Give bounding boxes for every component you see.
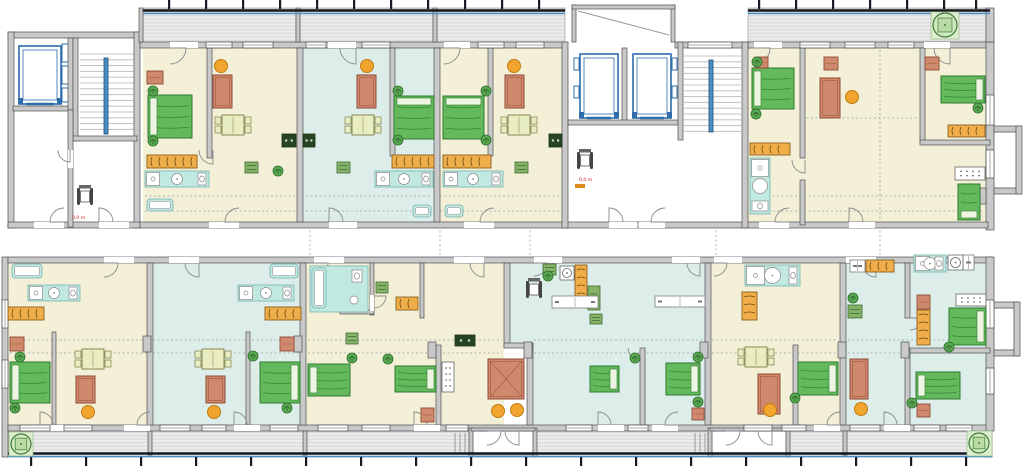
desk-dot [960, 171, 962, 173]
railing-post [943, 0, 945, 9]
railing-post [195, 457, 197, 466]
wall [13, 106, 73, 111]
sofa [206, 376, 225, 403]
cabinet [346, 333, 358, 344]
pillow [150, 98, 157, 135]
pillow [446, 98, 481, 105]
railing-post [910, 457, 912, 466]
column [838, 342, 846, 358]
wall [436, 345, 441, 425]
railing-post [250, 457, 252, 466]
chair [345, 117, 351, 124]
kitchen-counter [265, 307, 301, 320]
wall [52, 332, 56, 425]
handle [853, 265, 857, 267]
door-gap [329, 222, 357, 228]
wall [986, 42, 994, 230]
door-gap [884, 425, 910, 431]
desk-dot [967, 301, 969, 303]
door-gap [209, 222, 239, 228]
sink-drain [772, 275, 774, 277]
desk-dot [445, 385, 447, 387]
pillow [291, 365, 298, 400]
door-gap [99, 222, 129, 228]
shower [30, 287, 43, 300]
cabinet [590, 314, 602, 324]
chair [215, 126, 221, 133]
cabinet [848, 305, 862, 318]
chair [501, 126, 507, 133]
pouf [492, 405, 505, 418]
chair [531, 117, 537, 124]
door-gap [464, 222, 494, 228]
wall [742, 42, 748, 228]
sink-drain [53, 292, 55, 294]
sink-drain [265, 292, 267, 294]
wall [73, 136, 137, 141]
desk-dot [973, 297, 975, 299]
chair [375, 117, 381, 124]
chair [738, 349, 744, 356]
sink-drain [176, 178, 178, 180]
wall [420, 263, 424, 318]
wheelchair-back [579, 149, 591, 153]
wall [843, 431, 847, 455]
bathtub-inner [448, 208, 461, 215]
railing-post [832, 0, 834, 9]
unit-bottom-4-nook [507, 263, 530, 345]
elevator-equipment [574, 58, 579, 70]
elevator-sill [18, 98, 23, 104]
wheelchair-icon [590, 152, 593, 169]
wheelchair-seat [81, 191, 90, 202]
shower [445, 173, 458, 186]
railing-post [501, 0, 503, 9]
pouf [208, 406, 221, 419]
wall [905, 348, 910, 425]
burner [285, 139, 287, 141]
desk-dot [978, 171, 980, 173]
wall [572, 5, 675, 9]
elevator-equipment [574, 86, 579, 98]
wc [283, 287, 291, 299]
pillow [427, 369, 434, 389]
wall [303, 431, 307, 455]
door-gap [370, 295, 374, 311]
door-gap [672, 257, 700, 263]
door-gap [414, 425, 440, 431]
column [428, 342, 436, 358]
chair [75, 351, 81, 358]
floor-plan: 0,0 m0,0 m [0, 0, 1024, 472]
railing-post [316, 0, 318, 9]
elevator-car [633, 54, 671, 118]
railing-post [975, 0, 977, 9]
kitchen-block [303, 134, 315, 147]
door-gap [849, 222, 875, 228]
kitchen-counter [147, 155, 197, 168]
desk-dot [973, 301, 975, 303]
terrace-table-center [944, 24, 946, 26]
elevator-sill [579, 112, 584, 118]
pillow [310, 367, 317, 393]
sink [753, 179, 768, 194]
desk-dot [979, 297, 981, 299]
pillow [961, 211, 977, 218]
kitchen-block [455, 335, 475, 346]
desk-dot [445, 367, 447, 369]
terrace-table-center [978, 442, 980, 444]
burner [305, 139, 307, 141]
door-gap [924, 42, 950, 48]
wc [935, 257, 943, 270]
wall [434, 48, 440, 222]
wall [800, 48, 805, 158]
pouf [215, 60, 228, 73]
desk-dot [979, 301, 981, 303]
handle [698, 301, 702, 303]
elevator-car [19, 46, 61, 104]
pillow [691, 366, 698, 392]
pillow [976, 79, 983, 100]
door-gap [814, 425, 840, 431]
railing-post [140, 457, 142, 466]
bathtub-inner [150, 202, 171, 209]
entrance-lobby [994, 308, 1014, 350]
chair [225, 360, 231, 367]
chair [245, 117, 251, 124]
bathtub-inner [273, 267, 296, 276]
desk-dot [445, 373, 447, 375]
door-gap [34, 222, 64, 228]
door-gap [639, 222, 665, 228]
wall [568, 120, 678, 125]
kitchen-counter [8, 307, 44, 320]
bathtub-inner [315, 271, 324, 306]
cabinet [515, 162, 528, 173]
burner [557, 139, 559, 141]
wall [139, 8, 143, 42]
wall [297, 48, 303, 222]
chair [105, 351, 111, 358]
kitchen-block [282, 134, 296, 147]
terrace-table-center [20, 443, 22, 445]
pouf [764, 404, 777, 417]
railing-post [279, 0, 281, 9]
desk-dot [449, 379, 451, 381]
railing-post [30, 457, 32, 466]
wall [8, 32, 140, 38]
chair [345, 126, 351, 133]
sofa [357, 75, 376, 108]
wheelchair-back [528, 278, 540, 282]
railing-post [800, 457, 802, 466]
wall [920, 140, 990, 145]
chair [501, 117, 507, 124]
elevator-sill [614, 112, 619, 118]
door-gap [169, 257, 199, 263]
wall [793, 345, 798, 425]
wall [8, 257, 992, 263]
wheelchair-seat [530, 284, 539, 295]
entrance-lobby [994, 132, 1016, 188]
railing-post [168, 0, 170, 9]
desk-dot [972, 175, 974, 177]
door-gap [598, 425, 624, 431]
railing-post [869, 0, 871, 9]
railing-post [242, 0, 244, 9]
desk-dot [449, 373, 451, 375]
wall [8, 32, 14, 228]
entrance-lobby [473, 431, 533, 455]
pillow [829, 365, 836, 392]
door-gap [124, 425, 150, 431]
bathtub-inner [15, 267, 40, 276]
elevator-car [580, 54, 618, 118]
wall [73, 38, 78, 141]
wall [671, 5, 675, 42]
kitchen-counter [917, 310, 930, 345]
wall [920, 48, 925, 142]
railing-post [470, 457, 472, 466]
handle [591, 301, 595, 303]
pillow [918, 375, 925, 396]
wc [752, 201, 768, 211]
wheelchair-icon [90, 188, 93, 205]
railing-post [85, 457, 87, 466]
wall [1016, 126, 1022, 194]
chair [105, 360, 111, 367]
chair [375, 126, 381, 133]
railing-post [305, 457, 307, 466]
wheelchair-icon [577, 152, 580, 169]
desk-dot [960, 175, 962, 177]
shower [752, 160, 769, 177]
wc [422, 173, 430, 185]
wall [905, 263, 910, 318]
kitchen-counter [948, 125, 985, 137]
door-gap [328, 42, 356, 48]
elevator-sill [57, 98, 62, 104]
door-gap [444, 42, 470, 48]
pouf [846, 91, 859, 104]
kitchen-counter [443, 155, 491, 168]
wall [148, 431, 152, 455]
desk-dot [967, 297, 969, 299]
chair [225, 351, 231, 358]
cabinet [376, 282, 388, 293]
railing-post [758, 0, 760, 9]
railing-post [538, 0, 540, 9]
wall [471, 428, 535, 431]
measure-annotation: 0,0 m [72, 215, 86, 221]
shower [747, 267, 765, 285]
door-gap [759, 222, 789, 228]
railing-post [965, 457, 967, 466]
chair [245, 126, 251, 133]
railing-post [906, 0, 908, 9]
handle [858, 265, 862, 267]
entrance-lobby [712, 431, 786, 455]
sofa [820, 78, 840, 118]
wc [789, 267, 797, 284]
desk [442, 362, 454, 392]
handle [555, 301, 559, 303]
railing-post [464, 0, 466, 9]
pillow [754, 71, 761, 106]
wall [504, 263, 510, 347]
floor-plan-canvas: 0,0 m0,0 m [0, 0, 1024, 472]
railing-post [360, 457, 362, 466]
measure-tick [575, 184, 585, 188]
elevator-equipment [672, 86, 677, 98]
door-gap [454, 257, 484, 263]
handle [967, 262, 971, 264]
railing-post [427, 0, 429, 9]
door-gap [534, 257, 562, 263]
pillow [12, 365, 19, 400]
shower [147, 173, 160, 186]
wc [492, 173, 500, 185]
wheelchair-seat [581, 155, 590, 166]
wall [68, 38, 73, 110]
door-gap [234, 425, 260, 431]
wall [68, 110, 73, 227]
door-gap [609, 222, 637, 228]
cabinet [337, 162, 350, 173]
railing-post [690, 457, 692, 466]
burner [552, 139, 554, 141]
stair-rail [709, 60, 713, 132]
railing-post [415, 457, 417, 466]
chair [768, 349, 774, 356]
desk-dot [449, 367, 451, 369]
wall [134, 32, 140, 228]
wheelchair-icon [539, 281, 542, 298]
wheelchair-icon [77, 188, 80, 205]
pillow [610, 369, 617, 389]
desk [956, 294, 986, 306]
pouf [855, 403, 868, 416]
railing-post [390, 0, 392, 9]
burner [310, 139, 312, 141]
handle [658, 301, 662, 303]
door-gap [170, 42, 198, 48]
column [901, 342, 909, 358]
pouf [508, 60, 521, 73]
burner [460, 339, 462, 341]
washer-dot [566, 272, 568, 274]
sink-drain [472, 178, 474, 180]
wc [198, 173, 206, 185]
column [524, 342, 532, 358]
column [294, 336, 302, 352]
bathtub-inner [416, 208, 429, 215]
chair [738, 358, 744, 365]
door-gap [652, 425, 678, 431]
shower [377, 173, 390, 186]
wall [678, 42, 683, 140]
stair-rail [104, 58, 108, 134]
wall [622, 48, 627, 124]
pouf [511, 404, 524, 417]
column [143, 336, 151, 352]
wall [246, 332, 250, 425]
railing-post [795, 0, 797, 9]
wall [572, 5, 576, 42]
chair [75, 360, 81, 367]
wall [562, 42, 568, 228]
pillow [397, 98, 431, 105]
desk-dot [961, 301, 963, 303]
door-gap [314, 257, 344, 263]
chair [195, 351, 201, 358]
railing-post [745, 457, 747, 466]
desk-dot [978, 175, 980, 177]
sink-drain [929, 263, 931, 265]
sink-drain [403, 178, 405, 180]
wc [352, 270, 362, 282]
door-gap [714, 257, 742, 263]
wall [207, 48, 212, 158]
wall [986, 257, 994, 431]
elevator-sill [632, 112, 637, 118]
desk-dot [972, 171, 974, 173]
chair [768, 358, 774, 365]
railing-post [353, 0, 355, 9]
cabinet [245, 162, 258, 173]
desk-dot [966, 171, 968, 173]
chair [195, 360, 201, 367]
door-gap [754, 42, 782, 48]
pillow [977, 311, 984, 342]
desk-dot [449, 385, 451, 387]
wall [640, 348, 645, 425]
wall [800, 180, 805, 225]
kitchen-block [549, 134, 562, 147]
wall [1014, 302, 1020, 356]
burner [291, 139, 293, 141]
desk-dot [961, 297, 963, 299]
chair [531, 126, 537, 133]
railing-post [855, 457, 857, 466]
door-gap [68, 150, 73, 168]
railing-post [580, 457, 582, 466]
pouf [361, 60, 374, 73]
desk [955, 167, 985, 180]
railing-post [525, 457, 527, 466]
sofa [213, 75, 232, 108]
burner [468, 339, 470, 341]
wc [69, 287, 77, 299]
wall [2, 257, 8, 457]
wheelchair-back [79, 185, 91, 189]
door-gap [104, 257, 134, 263]
railing-post [635, 457, 637, 466]
chair [215, 117, 221, 124]
elevator-sill [667, 112, 672, 118]
shower [240, 287, 253, 300]
washer-dot [955, 262, 957, 264]
elevator-equipment [672, 58, 677, 70]
desk-dot [445, 379, 447, 381]
kitchen-counter [396, 297, 418, 310]
sink [350, 296, 358, 304]
measure-annotation: 0,0 m [579, 177, 593, 183]
unit-bottom-4 [530, 263, 707, 425]
wheelchair-icon [526, 281, 529, 298]
desk-dot [966, 175, 968, 177]
